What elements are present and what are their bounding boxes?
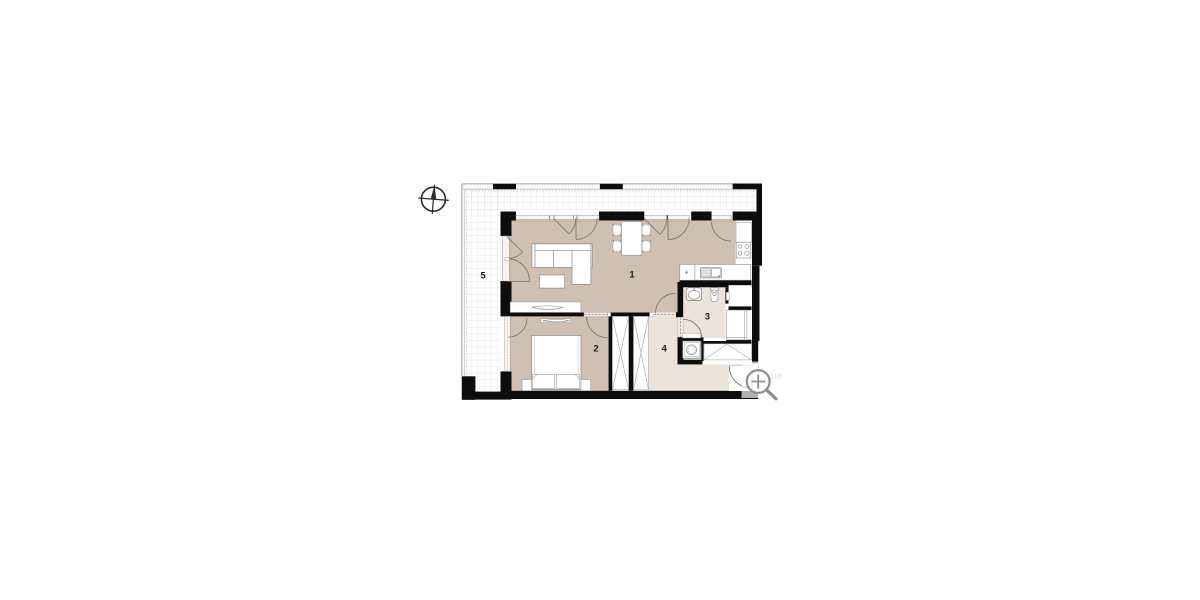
svg-text:1: 1 (629, 270, 635, 281)
svg-text:4: 4 (662, 343, 668, 354)
svg-text:3: 3 (705, 311, 710, 322)
svg-text:2: 2 (593, 343, 598, 354)
svg-text:5: 5 (480, 271, 486, 282)
svg-text:118: 118 (770, 372, 782, 381)
